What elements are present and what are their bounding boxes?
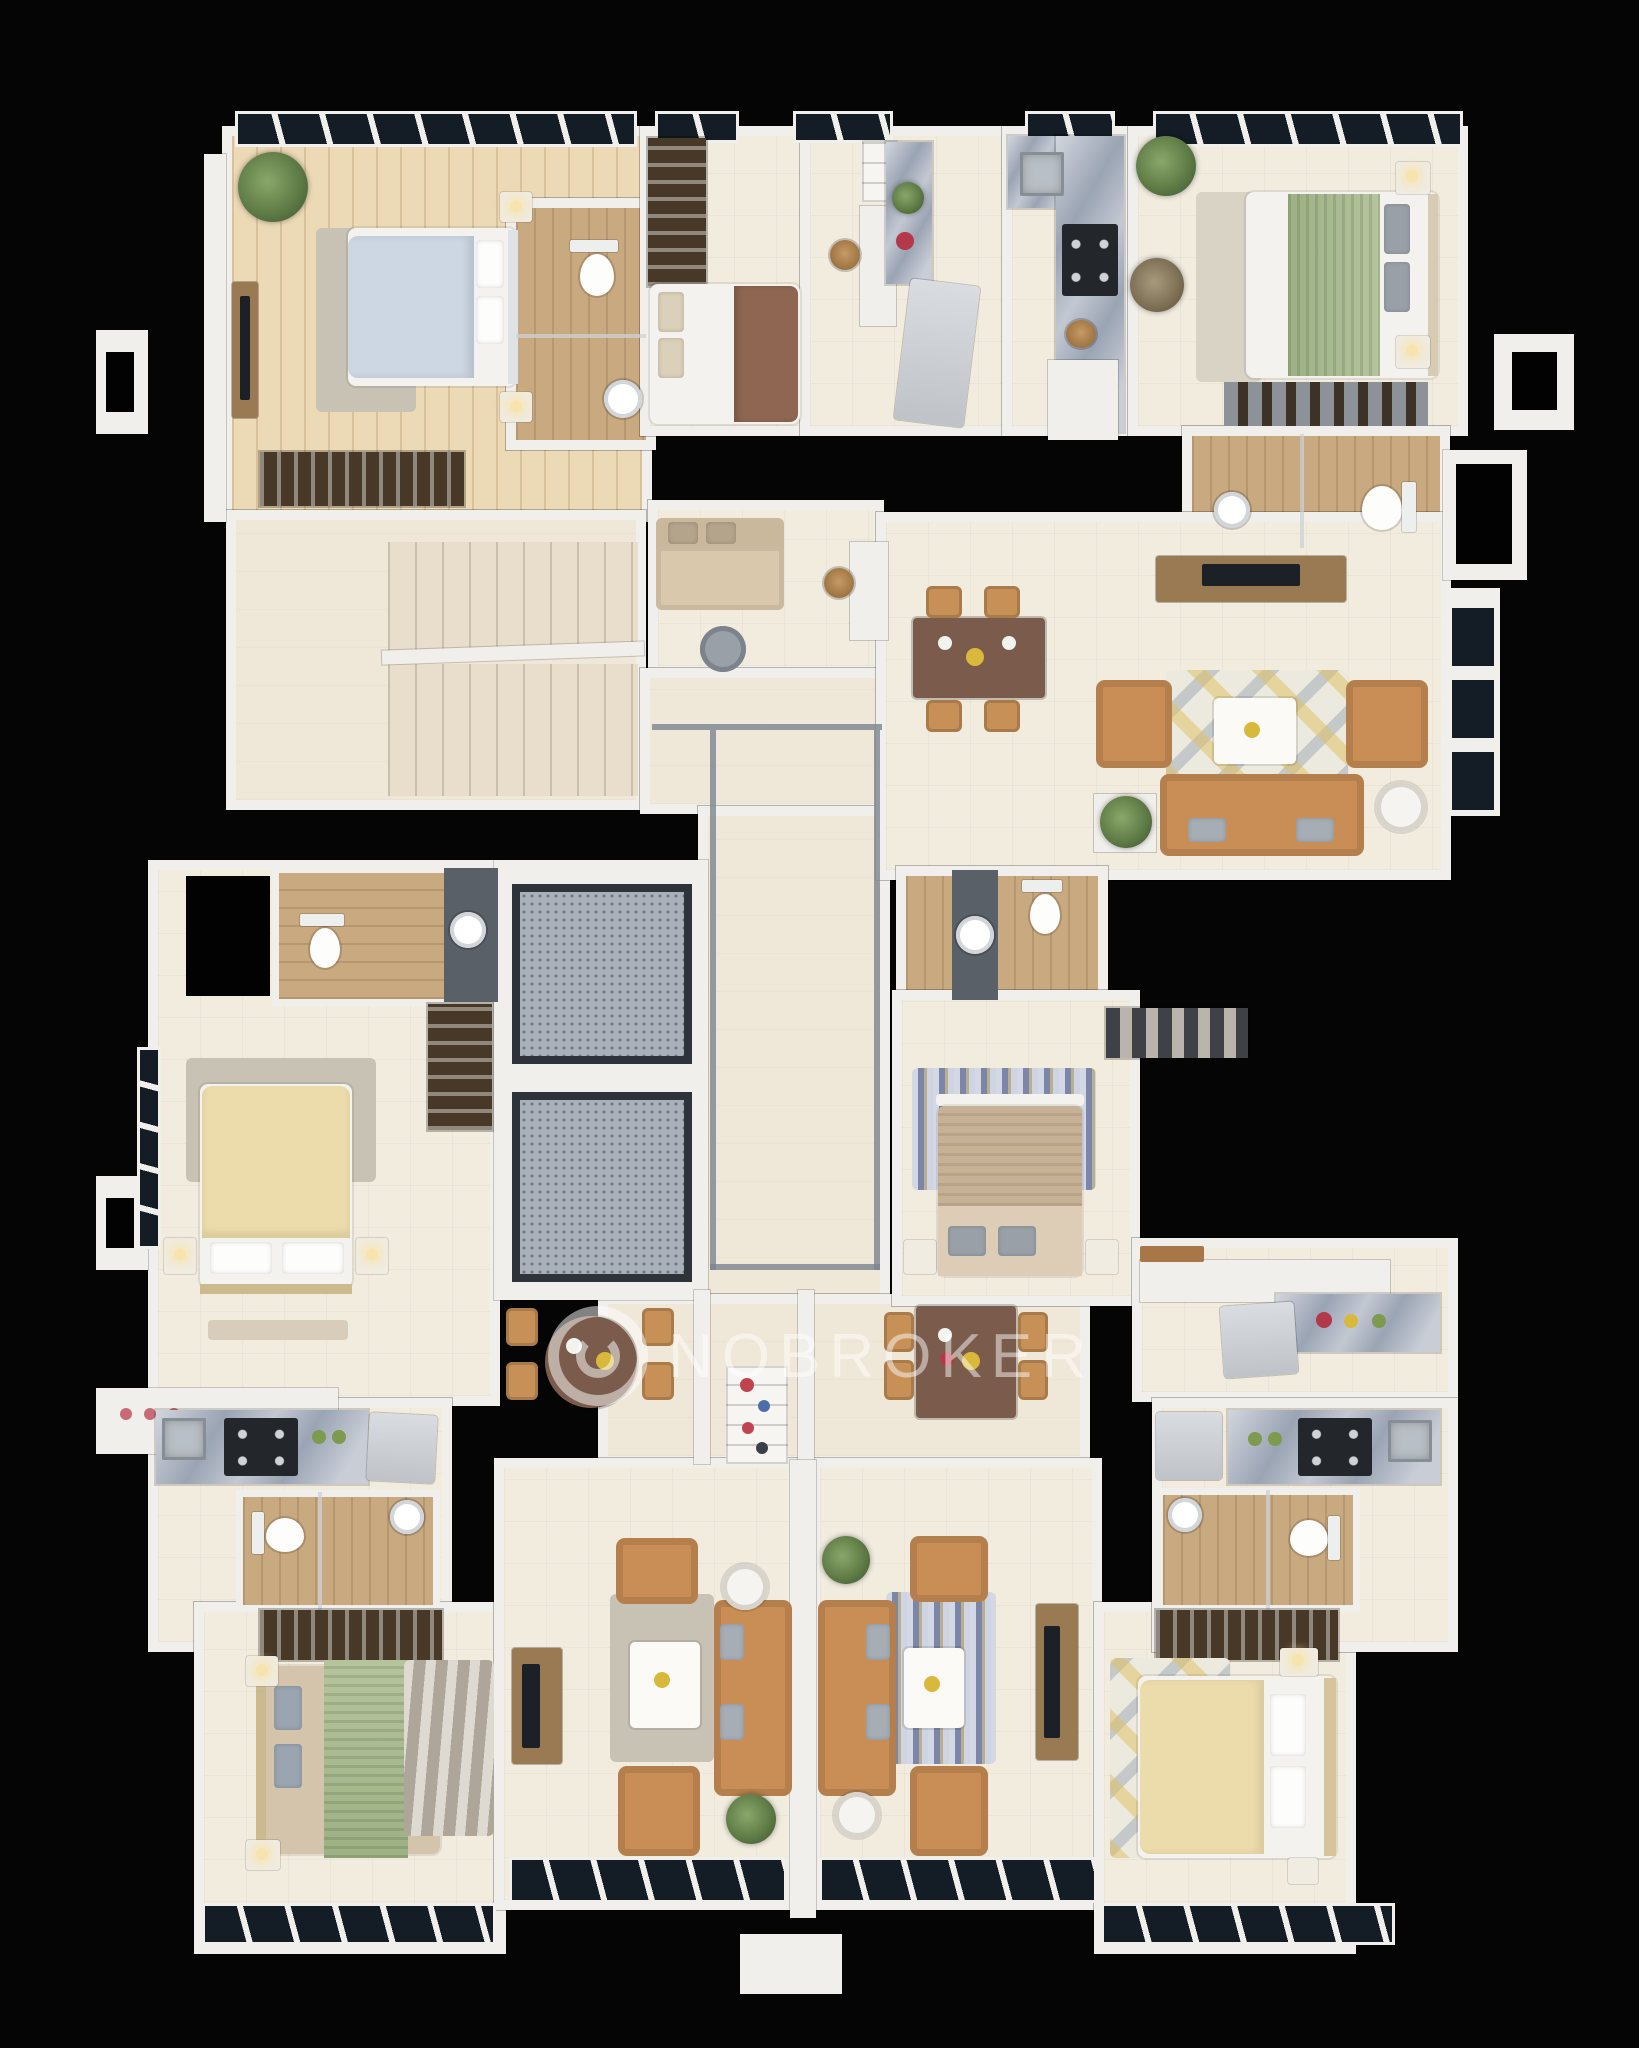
- pillow: [476, 296, 504, 344]
- pillow: [866, 1704, 890, 1740]
- dining-chair: [926, 700, 962, 732]
- dry-plant: [1130, 258, 1184, 312]
- dining-chair: [984, 700, 1020, 732]
- window: [140, 1050, 158, 1246]
- study-desk: [850, 542, 888, 640]
- armchair: [910, 1766, 988, 1856]
- elevator-shaft: [512, 1092, 692, 1282]
- staircase-upper-flight: [388, 542, 638, 656]
- lamp: [256, 1664, 268, 1676]
- headboard: [1324, 1678, 1336, 1856]
- elevator-shaft: [512, 884, 692, 1064]
- lamp: [256, 1848, 268, 1860]
- lamp: [510, 200, 522, 212]
- kitchen-counter: [1276, 1294, 1440, 1352]
- pillow: [1188, 818, 1226, 842]
- pillow: [1270, 1766, 1306, 1828]
- refrigerator: [1220, 1302, 1299, 1379]
- pillow: [720, 1704, 744, 1740]
- stool: [1066, 320, 1096, 348]
- corridor-floor-trim: [710, 730, 716, 1270]
- kitchen-sink: [1388, 1420, 1432, 1462]
- shower-drain: [604, 380, 642, 418]
- window-slot: [106, 1198, 134, 1248]
- dining-chair: [506, 1308, 538, 1346]
- window: [822, 1860, 1094, 1900]
- jar: [1344, 1314, 1358, 1328]
- corridor-floor-trim: [710, 1264, 880, 1270]
- jar: [1268, 1432, 1282, 1446]
- gas-stove: [1062, 224, 1118, 296]
- table-decor: [654, 1672, 670, 1688]
- plate: [938, 636, 952, 650]
- headboard: [936, 1094, 1084, 1106]
- pillow: [476, 240, 504, 288]
- pillow: [1384, 204, 1410, 254]
- window-slot: [106, 352, 134, 412]
- duct-opening: [1512, 352, 1557, 410]
- lamp: [1292, 1654, 1304, 1666]
- window: [1104, 1906, 1392, 1942]
- dining-chair: [506, 1362, 538, 1400]
- shower-glass: [318, 1492, 322, 1610]
- bathroom-sink: [1168, 1498, 1202, 1532]
- flower-vase: [1316, 1312, 1332, 1328]
- bathroom-sink: [390, 1500, 424, 1534]
- headboard: [508, 230, 518, 384]
- wardrobe: [260, 452, 464, 506]
- shelf-decor: [756, 1442, 768, 1454]
- pillow: [210, 1242, 272, 1274]
- wardrobe: [648, 138, 706, 286]
- shoe-rack: [1106, 1008, 1248, 1058]
- flower-decor: [120, 1408, 132, 1420]
- toilet: [580, 254, 614, 296]
- jar: [1248, 1432, 1262, 1446]
- plant: [1136, 136, 1196, 196]
- corridor-floor-trim: [652, 724, 882, 730]
- corridor-floor-trim: [874, 730, 880, 1270]
- watermark: NOBROKER: [548, 1306, 1095, 1406]
- pillow: [274, 1686, 302, 1730]
- tv: [240, 296, 250, 400]
- nightstand: [1086, 1240, 1118, 1274]
- wall: [204, 154, 226, 522]
- gas-stove: [1298, 1418, 1372, 1476]
- loveseat: [656, 546, 784, 610]
- toilet: [1362, 486, 1402, 530]
- shelf-decor: [742, 1422, 754, 1434]
- duvet: [938, 1106, 1082, 1206]
- corridor-vertical: [698, 806, 890, 1306]
- kitchen-sink: [162, 1418, 206, 1460]
- pillow: [274, 1744, 302, 1788]
- flower-vase: [896, 232, 914, 250]
- storage-bench-pillows: [1224, 382, 1428, 426]
- armchair: [616, 1538, 698, 1604]
- toilet: [1402, 482, 1416, 532]
- nightstand: [1288, 1858, 1318, 1884]
- nobroker-logo-icon: [548, 1306, 648, 1406]
- armchair: [1096, 680, 1172, 768]
- headboard: [256, 1666, 266, 1854]
- pillow: [1270, 1694, 1306, 1756]
- side-table: [1376, 782, 1426, 832]
- pillow: [998, 1226, 1036, 1256]
- fruit-bowl: [966, 648, 984, 666]
- window: [658, 114, 736, 140]
- lamp: [1406, 170, 1418, 182]
- flower-decor: [144, 1408, 156, 1420]
- jar: [1372, 1314, 1386, 1328]
- rug: [404, 1660, 494, 1836]
- dining-chair: [984, 586, 1020, 618]
- wardrobe: [428, 1004, 492, 1130]
- pillow: [282, 1242, 344, 1274]
- party-wall: [790, 1460, 816, 1918]
- pillow: [668, 522, 698, 544]
- lamp: [510, 400, 522, 412]
- balcony-window: [1446, 588, 1500, 816]
- door-opening: [186, 876, 270, 996]
- pillow: [948, 1226, 986, 1256]
- desk-chair: [824, 568, 854, 598]
- toilet: [300, 914, 344, 926]
- room-bathroom-4: [272, 866, 452, 1006]
- bathroom-sink: [450, 912, 486, 948]
- room-bathroom-5: [896, 866, 1108, 1004]
- bathroom-sink: [1214, 492, 1250, 528]
- toilet: [1030, 894, 1060, 934]
- lamp: [366, 1248, 378, 1260]
- pillow: [658, 338, 684, 378]
- tv: [1044, 1626, 1060, 1738]
- gas-stove: [224, 1418, 298, 1476]
- plate: [1002, 636, 1016, 650]
- armchair: [1346, 680, 1428, 768]
- duvet: [1140, 1680, 1264, 1854]
- entrance-porch: [740, 1934, 842, 1994]
- duvet: [348, 236, 474, 378]
- shower-glass: [1300, 434, 1304, 548]
- lamp: [174, 1248, 186, 1260]
- floor-plan-render: NOBROKER: [0, 0, 1639, 2048]
- side-table: [700, 626, 746, 672]
- green-throw-blanket: [1288, 194, 1380, 376]
- staircase-lower-flight: [388, 664, 638, 796]
- toilet: [1328, 1516, 1340, 1560]
- toilet: [310, 928, 340, 968]
- corridor-upper: [640, 668, 888, 814]
- plant: [822, 1536, 870, 1584]
- toilet: [1290, 1520, 1328, 1556]
- watermark-text: NOBROKER: [668, 1321, 1095, 1392]
- refrigerator: [366, 1412, 437, 1483]
- table-decor: [1244, 722, 1260, 738]
- tv: [522, 1664, 540, 1748]
- toilet: [570, 240, 618, 252]
- tv: [1202, 564, 1300, 586]
- sofa: [1160, 774, 1364, 856]
- pillow: [658, 292, 684, 332]
- bathroom-sink: [956, 916, 994, 954]
- window: [205, 1906, 493, 1942]
- shower-glass: [516, 334, 646, 338]
- plant: [238, 152, 308, 222]
- desk-chair: [830, 240, 860, 270]
- side-table: [722, 1564, 768, 1610]
- kitchen-sink: [1020, 152, 1064, 196]
- pillow: [706, 522, 736, 544]
- window: [1156, 114, 1460, 144]
- duct-opening: [1456, 464, 1512, 564]
- armchair: [618, 1766, 700, 1856]
- refrigerator: [1156, 1412, 1222, 1480]
- duvet: [202, 1086, 350, 1238]
- lamp: [1406, 344, 1418, 356]
- side-table: [834, 1792, 880, 1838]
- toilet: [266, 1518, 304, 1552]
- headboard: [200, 1284, 352, 1294]
- green-throw-blanket: [324, 1660, 408, 1858]
- bed-bench: [208, 1320, 348, 1340]
- plant: [1100, 796, 1152, 848]
- dining-chair: [926, 586, 962, 618]
- armchair: [910, 1536, 988, 1602]
- wardrobe: [260, 1610, 442, 1660]
- jar: [312, 1430, 326, 1444]
- pillow: [1296, 818, 1334, 842]
- kitchen-cabinet: [1048, 360, 1118, 440]
- window: [796, 114, 890, 140]
- plant: [892, 182, 924, 214]
- window: [512, 1860, 784, 1900]
- jar: [332, 1430, 346, 1444]
- window: [238, 114, 634, 144]
- shower-glass: [1266, 1490, 1270, 1610]
- table-decor: [924, 1676, 940, 1692]
- pillow: [720, 1624, 744, 1660]
- pillow: [866, 1624, 890, 1660]
- plant: [726, 1794, 776, 1844]
- pillow: [1384, 262, 1410, 312]
- nobroker-logo-inner-ring: [576, 1334, 620, 1378]
- nightstand: [904, 1240, 936, 1274]
- toilet: [252, 1512, 264, 1554]
- cutting-board: [1140, 1246, 1204, 1262]
- duvet: [734, 286, 798, 422]
- toilet: [1022, 880, 1062, 892]
